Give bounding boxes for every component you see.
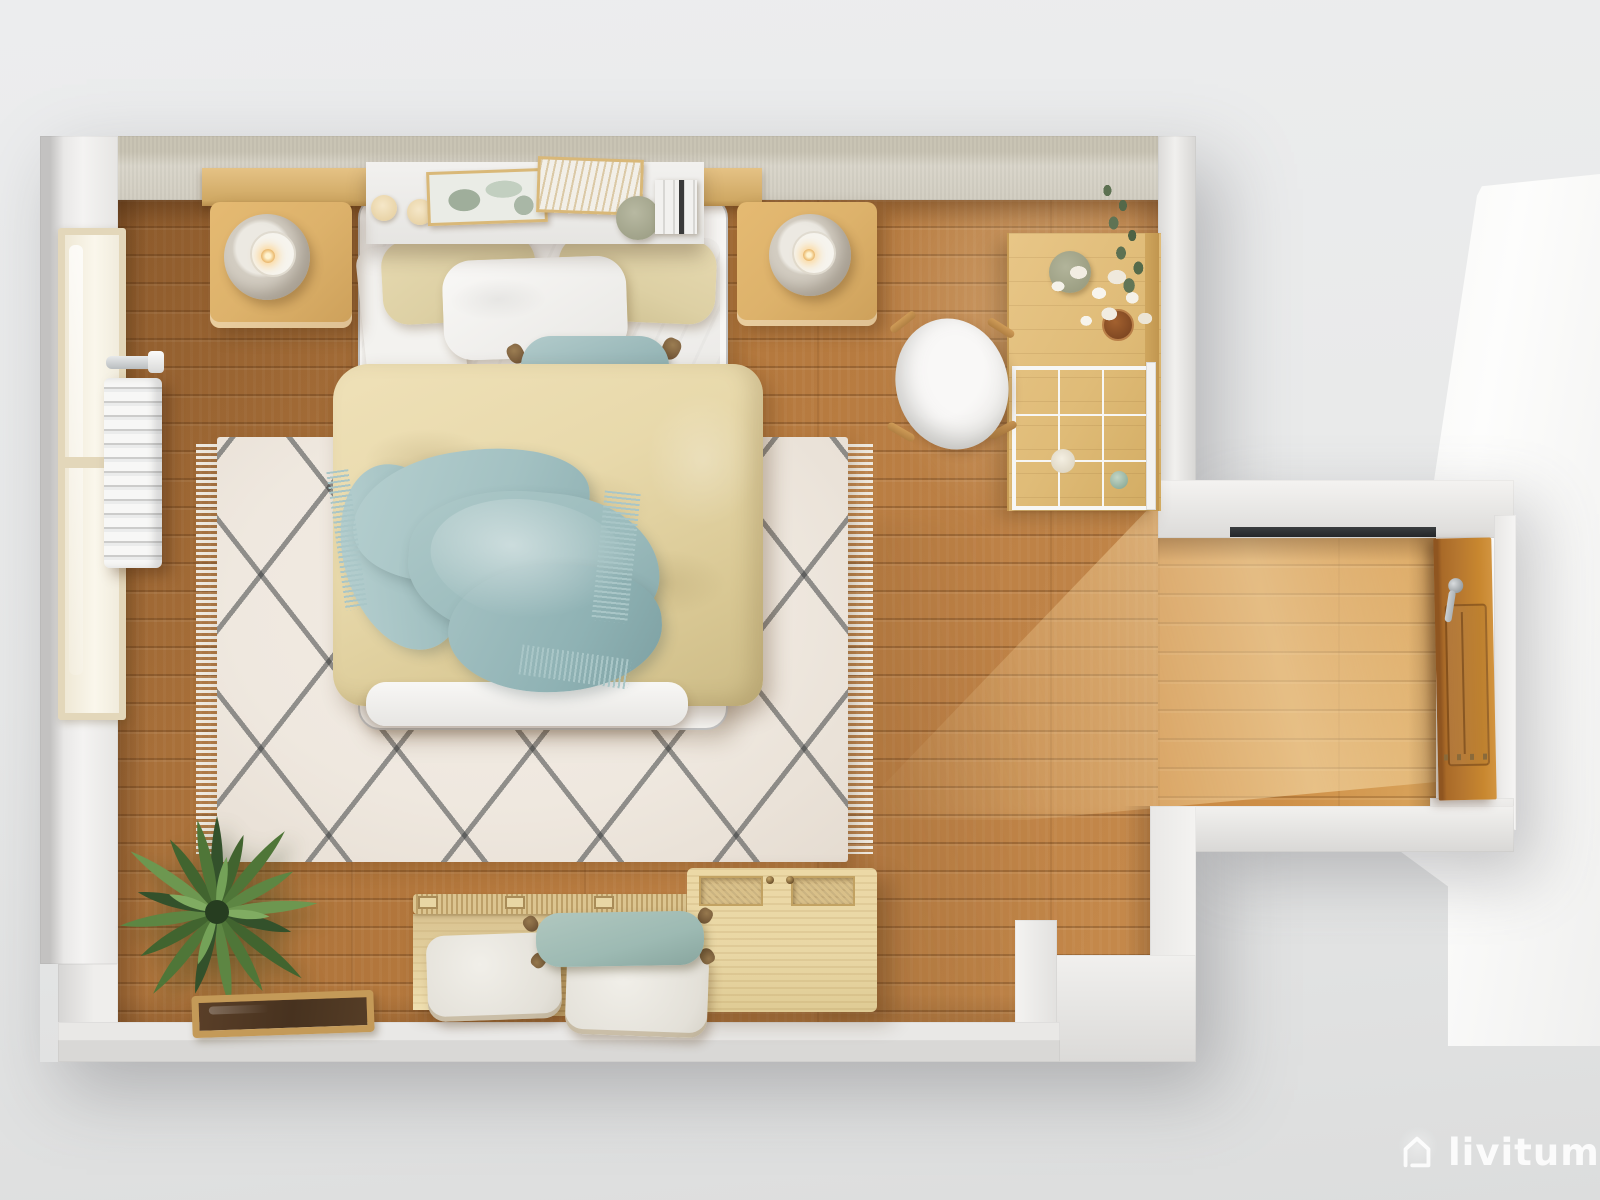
candle <box>371 195 397 221</box>
chest-woven-panel-right <box>791 876 855 906</box>
wall-step-vertical <box>1150 806 1196 966</box>
book-stack <box>655 180 697 234</box>
bench-notch <box>418 896 438 909</box>
house-outline-icon <box>1396 1131 1438 1173</box>
watermark-brand: livitum <box>1448 1134 1600 1171</box>
door-frame-right <box>1494 515 1516 830</box>
radiator-valve-cap <box>148 351 164 373</box>
plant-center <box>205 900 229 924</box>
lamp-bulb-glow-left <box>261 249 275 263</box>
plant-leaves <box>119 816 318 1008</box>
chest-woven-panel-left <box>699 876 763 906</box>
wall-right <box>1158 136 1196 492</box>
wall-step-large <box>1055 955 1196 1062</box>
window-divider <box>65 457 105 468</box>
open-door <box>1433 537 1496 800</box>
bench-notch <box>594 896 614 909</box>
wall-hallway-bottom <box>1150 806 1514 852</box>
radiator <box>104 378 162 568</box>
rug-fringe-right <box>847 444 873 854</box>
sage-plate <box>616 196 660 240</box>
abstract-art-frame <box>426 168 548 226</box>
dark-threshold-strip <box>1230 527 1436 537</box>
door-panel <box>1445 604 1490 767</box>
green-glass-cup <box>1110 471 1128 489</box>
desk-candle <box>1051 449 1075 473</box>
eucalyptus-sprig <box>1095 178 1157 303</box>
wire-grid-organizer <box>1012 366 1148 510</box>
decorative-tray <box>191 990 374 1038</box>
door-hinge-dots <box>1444 753 1490 760</box>
chest-knob <box>786 876 794 884</box>
lamp-bulb-glow-right <box>803 249 815 261</box>
grid-side-rail <box>1146 362 1156 510</box>
tray-glare <box>209 1004 269 1014</box>
bedroom-floorplan-render: livitum <box>0 0 1600 1200</box>
watermark: livitum <box>1396 1122 1600 1182</box>
chest-knob <box>766 876 774 884</box>
bench-notch <box>505 896 525 909</box>
teal-floor-cushion <box>536 911 705 968</box>
